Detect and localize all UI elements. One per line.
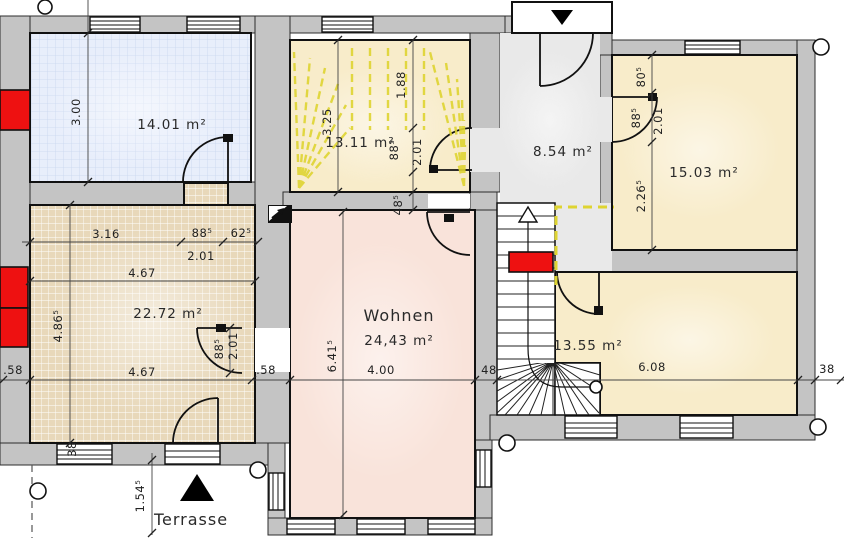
dim-38-wall: 38 [65, 441, 79, 457]
dim-4-67-top: 4.67 [128, 266, 156, 280]
terrace-door-threshold [165, 444, 220, 464]
dim-58-mid: .58 [256, 363, 276, 377]
walkline-start-circle [590, 381, 602, 393]
dim-1-88: 1.88 [394, 71, 408, 99]
area-label-mid-left: 22.72 m² [133, 306, 203, 322]
dim-2-01-stair: 2.01 [410, 138, 424, 166]
red-window-marker-2 [0, 267, 28, 308]
dim-6-41-5: 6.41⁵ [325, 340, 339, 373]
floorplan-svg: 14.01 m² 13.11 m² 8.54 m² 15.03 m² 22.72… [0, 0, 844, 538]
post-circle-bottomright [810, 419, 826, 435]
dim-2-26-5: 2.26⁵ [634, 180, 648, 213]
dim-4-00: 4.00 [367, 363, 395, 377]
red-window-marker-1 [0, 90, 30, 130]
dim-48-5-wall: 48⁵ [391, 195, 405, 216]
post-circle-bay-right [499, 435, 515, 451]
area-label-bottom-right: 13.55 m² [553, 338, 623, 354]
area-label-living: 24,43 m² [364, 333, 434, 349]
section-mark-icon [268, 205, 292, 223]
terrace-arrow-icon [180, 474, 214, 501]
dim-3-00: 3.00 [69, 98, 83, 126]
dim-62-5-top: 62⁵ [231, 226, 252, 240]
window-top-1 [90, 17, 140, 32]
hall-corridor-floor [555, 203, 612, 272]
dim-88-5-top: 88⁵ [192, 226, 213, 240]
area-label-top-right: 15.03 m² [669, 165, 739, 181]
dim-88-5-stair: 88⁵ [387, 140, 401, 161]
dim-4-67-bottom: 4.67 [128, 365, 156, 379]
window-south-right-2 [680, 416, 733, 438]
door-gap-living [428, 194, 470, 208]
red-window-marker-3 [0, 308, 28, 347]
room-name-living: Wohnen [364, 306, 435, 325]
dim-4-86-5: 4.86⁵ [51, 310, 65, 343]
dim-80-5: 80⁵ [634, 67, 648, 88]
window-bay-right [476, 450, 491, 487]
door-gap-topleft [184, 183, 228, 205]
dim-58-left: .58 [3, 363, 23, 377]
window-bay-bottom-2 [357, 519, 405, 534]
window-bay-bottom-1 [287, 519, 335, 534]
stair-red-marker [509, 252, 553, 272]
window-top-3 [322, 17, 373, 32]
dim-3-16: 3.16 [92, 227, 120, 241]
floorplan-canvas: 14.01 m² 13.11 m² 8.54 m² 15.03 m² 22.72… [0, 0, 844, 538]
area-label-hall: 8.54 m² [533, 144, 593, 160]
window-top-right [685, 41, 740, 54]
area-label-top-left: 14.01 m² [137, 117, 207, 133]
window-bay-left [269, 473, 284, 510]
dim-3-25: 3.25 [320, 108, 334, 136]
window-top-2 [187, 17, 240, 32]
entrance-porch [512, 2, 612, 33]
dim-2-01-right: 2.01 [651, 107, 665, 135]
door-gap-topright [600, 97, 612, 142]
dim-2-01-top: 2.01 [187, 249, 215, 263]
post-circle-terrace [30, 483, 46, 499]
dim-88-5-right: 88⁵ [629, 108, 643, 129]
post-circle-topright [813, 39, 829, 55]
dim-38-right: 38 [819, 362, 835, 376]
area-label-stairwell: 13.11 m² [325, 135, 395, 151]
post-circle-topleft [38, 0, 52, 14]
window-bay-bottom-3 [428, 519, 475, 534]
dim-48: 48 [481, 363, 497, 377]
post-circle-bay-left [250, 462, 266, 478]
dim-6-08: 6.08 [638, 360, 666, 374]
dim-88-5-door: 88⁵ [212, 339, 226, 360]
window-south-right-1 [565, 416, 617, 438]
dim-1-54-5: 1.54⁵ [133, 480, 147, 513]
door-gap-stairwell [470, 128, 500, 172]
room-name-terrace: Terrasse [153, 510, 228, 529]
dim-2-01-door: 2.01 [226, 332, 240, 360]
